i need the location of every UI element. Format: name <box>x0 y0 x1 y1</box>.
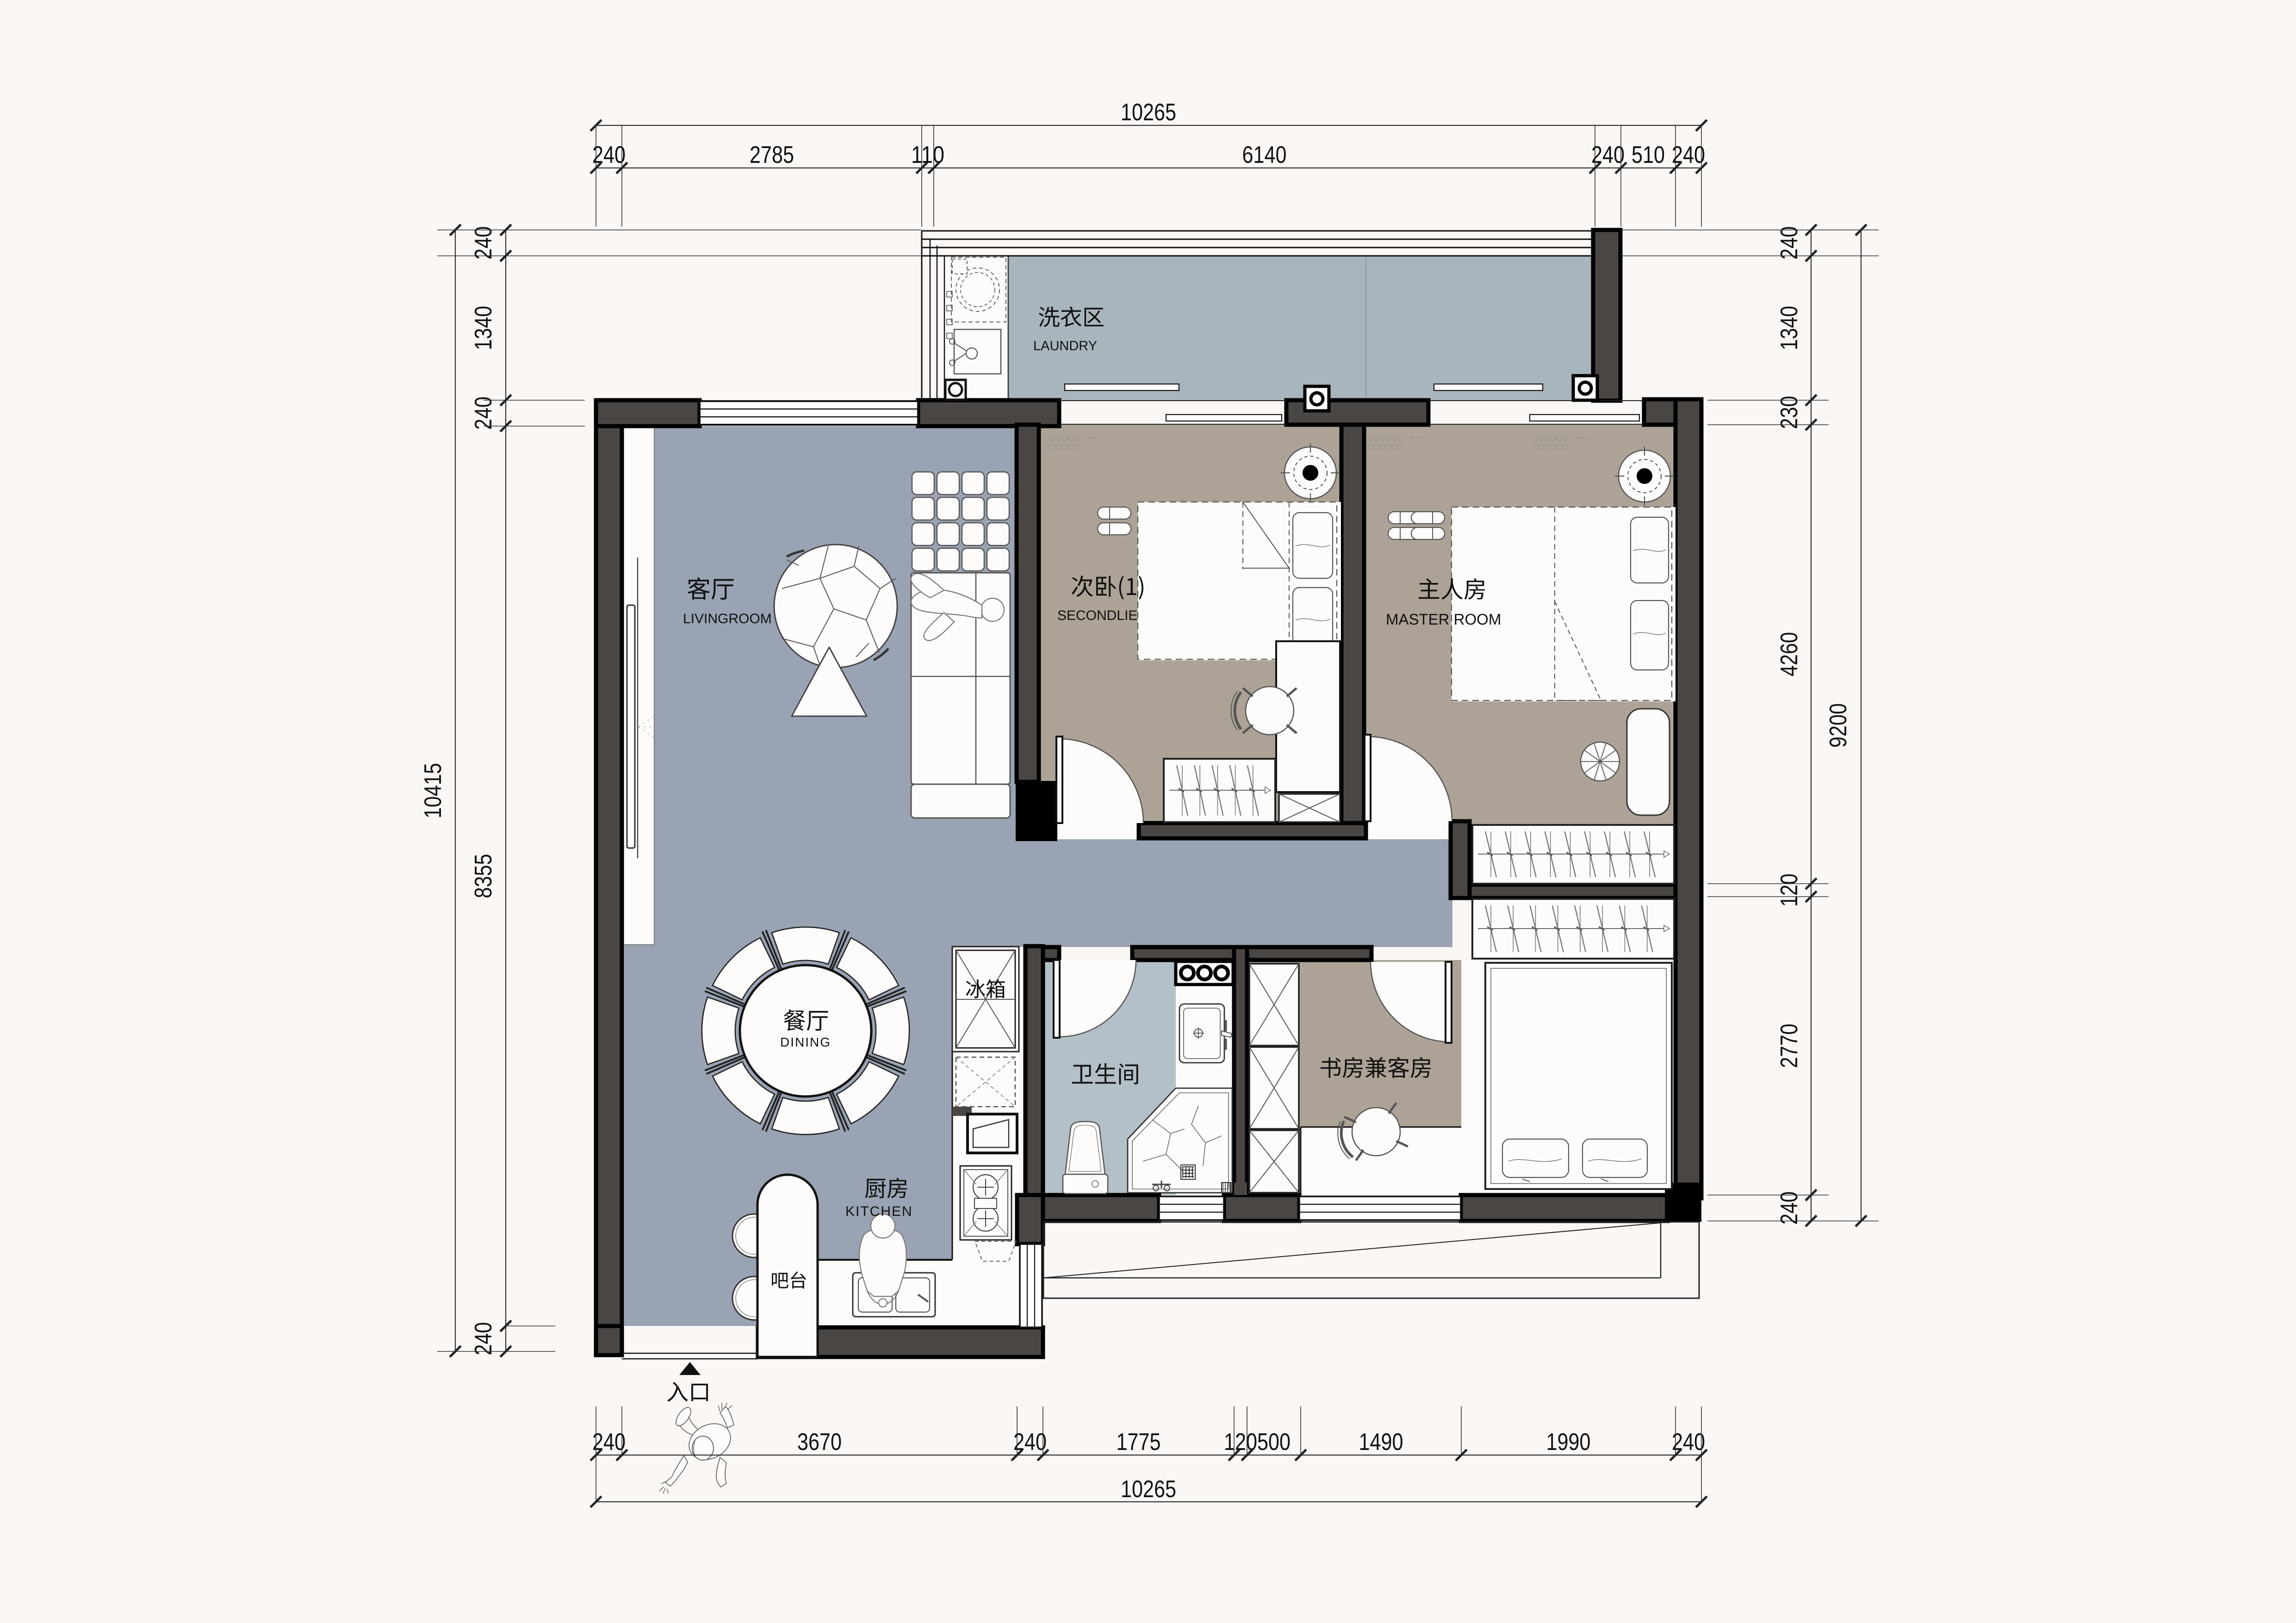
svg-text:3670: 3670 <box>797 1429 842 1456</box>
svg-text:MASTER ROOM: MASTER ROOM <box>1386 611 1501 628</box>
svg-text:230: 230 <box>1776 396 1803 429</box>
svg-text:120: 120 <box>1776 873 1803 907</box>
svg-text:SECONDLIE: SECONDLIE <box>1057 608 1137 623</box>
svg-text:10265: 10265 <box>1121 1476 1176 1503</box>
svg-text:9200: 9200 <box>1825 703 1852 748</box>
svg-text:500: 500 <box>1257 1429 1291 1456</box>
svg-text:2785: 2785 <box>750 142 794 168</box>
svg-text:8355: 8355 <box>470 854 497 898</box>
svg-text:1340: 1340 <box>1776 306 1803 350</box>
svg-text:KITCHEN: KITCHEN <box>845 1204 913 1219</box>
svg-text:240: 240 <box>592 142 626 168</box>
svg-text:240: 240 <box>1013 1429 1047 1456</box>
svg-text:120: 120 <box>1224 1429 1257 1456</box>
svg-text:1340: 1340 <box>470 306 497 350</box>
svg-text:1990: 1990 <box>1546 1429 1591 1456</box>
svg-text:240: 240 <box>470 396 497 430</box>
svg-text:1490: 1490 <box>1359 1429 1403 1456</box>
svg-text:4260: 4260 <box>1776 632 1803 676</box>
svg-text:LIVINGROOM: LIVINGROOM <box>683 611 772 626</box>
svg-text:6140: 6140 <box>1242 142 1287 168</box>
svg-text:DINING: DINING <box>780 1035 831 1049</box>
svg-text:2770: 2770 <box>1776 1024 1803 1068</box>
svg-text:240: 240 <box>1776 1191 1803 1225</box>
svg-text:110: 110 <box>911 142 944 168</box>
svg-text:1775: 1775 <box>1117 1429 1161 1456</box>
svg-text:240: 240 <box>1776 226 1803 260</box>
svg-text:10415: 10415 <box>420 763 447 818</box>
svg-text:240: 240 <box>592 1429 626 1456</box>
svg-text:10265: 10265 <box>1121 99 1176 126</box>
svg-text:240: 240 <box>470 1322 497 1356</box>
svg-text:240: 240 <box>1672 142 1705 168</box>
svg-text:240: 240 <box>470 226 497 260</box>
svg-text:510: 510 <box>1632 142 1665 168</box>
svg-text:240: 240 <box>1672 1429 1705 1456</box>
svg-text:240: 240 <box>1591 142 1625 168</box>
svg-text:LAUNDRY: LAUNDRY <box>1033 339 1097 353</box>
